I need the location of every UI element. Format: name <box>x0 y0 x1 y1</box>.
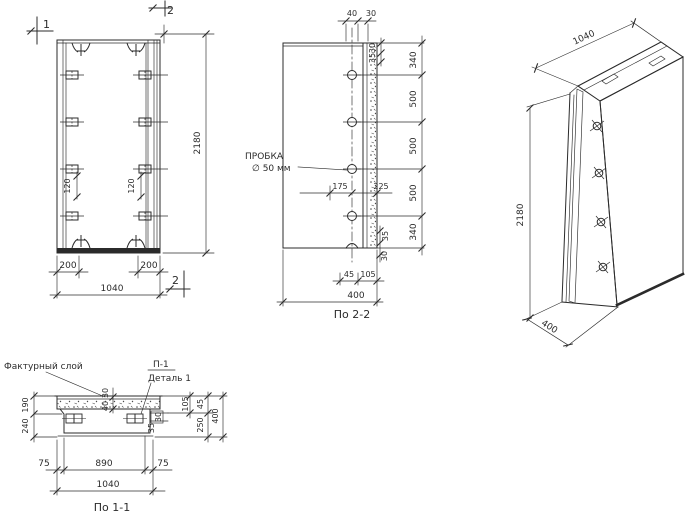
dim-label: 45 <box>196 399 205 409</box>
right-dimensions: 105 45 250 400 <box>155 392 227 442</box>
section-2-2-caption: По 2-2 <box>334 308 370 321</box>
right-top-detail-dimensions: 30 35 <box>368 38 385 66</box>
plug-callout-line2: ∅ 50 мм <box>252 164 291 174</box>
bracket-icon <box>60 212 84 220</box>
lifting-loop-icon <box>72 235 90 248</box>
detail-dimensions: 30 35 <box>147 412 163 433</box>
section-marker-label: 2 <box>167 4 174 17</box>
dim-label: 2180 <box>193 131 203 154</box>
plug-icon <box>594 216 608 228</box>
iso-height-dimension: 2180 <box>516 94 570 322</box>
bracket-icon <box>133 165 168 173</box>
section-1-1-view: Фактурный слой П-1 Деталь 1 30 40 190 24… <box>4 360 227 514</box>
section-marker-2-bottom: 2 <box>166 271 190 297</box>
right-bottom-detail-dimensions: 35 30 <box>377 226 391 262</box>
dim-label: 500 <box>409 90 419 107</box>
dim-label: 1040 <box>97 480 120 490</box>
bracket-offset-dimension-right: 120 <box>127 172 145 201</box>
section-marker-2-top: 2 <box>149 1 174 43</box>
bracket-icon <box>60 71 84 79</box>
bracket-icon <box>60 165 84 173</box>
height-segment-dimensions: 340 500 500 500 340 <box>409 36 426 255</box>
dim-label: 35 <box>147 423 156 433</box>
dim-label: 890 <box>95 459 112 469</box>
dim-label: 200 <box>140 261 157 271</box>
dim-label: 200 <box>59 261 76 271</box>
dim-label: 30 <box>101 388 110 398</box>
section-1-1-caption: По 1-1 <box>94 501 130 514</box>
plug-icon <box>343 212 361 221</box>
lifting-loops <box>72 43 145 248</box>
dim-label: 120 <box>127 178 136 193</box>
dim-label: 500 <box>409 137 419 154</box>
section-2-2-outline <box>283 28 424 262</box>
section-marker-label: 1 <box>43 18 50 31</box>
iso-plugs <box>590 120 610 273</box>
bracket-icon <box>133 118 168 126</box>
dim-label: 225 <box>373 182 388 191</box>
section-marker-1: 1 <box>27 17 53 44</box>
dim-label: 75 <box>157 459 168 469</box>
iso-view: 1040 2180 400 <box>516 18 683 349</box>
facing-layer-label: Фактурный слой <box>4 362 83 372</box>
dim-label: 120 <box>63 178 72 193</box>
section-2-2-view: 40 30 30 35 340 500 500 500 340 ПРОБКА ∅… <box>245 9 426 321</box>
dim-label: 75 <box>38 459 49 469</box>
embedded-brackets <box>62 414 147 423</box>
front-view: 120 120 2180 200 200 <box>27 1 214 299</box>
section-marker-label: 2 <box>172 274 179 287</box>
dim-label: 30 <box>380 251 389 261</box>
dim-label: 1040 <box>572 29 597 48</box>
dim-label: 240 <box>21 418 30 433</box>
dim-label: 500 <box>409 184 419 201</box>
plug-icon <box>592 167 606 179</box>
dim-label: 40 <box>347 9 357 18</box>
bracket-icon <box>123 414 147 423</box>
dim-label: 340 <box>409 51 419 68</box>
dim-label: 175 <box>332 182 347 191</box>
bracket-offset-dimension-left: 120 <box>63 172 81 201</box>
plug-icon <box>343 165 361 174</box>
dim-label: 2180 <box>516 203 526 226</box>
bracket-icon <box>133 71 168 79</box>
bottom-dimensions: 75 890 75 1040 <box>38 436 172 495</box>
dim-label: 30 <box>366 9 376 18</box>
detail-label: Деталь 1 <box>148 374 191 384</box>
plug-icon <box>343 71 361 80</box>
bracket-icon <box>62 414 86 423</box>
dim-label: 30 <box>368 43 377 53</box>
dim-label: 30 <box>154 412 163 422</box>
plug-icon <box>596 261 610 273</box>
iso-depth-dimension: 400 <box>522 307 618 350</box>
height-dimension: 2180 <box>155 31 214 257</box>
dim-label: 400 <box>211 408 220 423</box>
dim-label: 250 <box>196 417 205 432</box>
mid-dimensions: 175 225 <box>300 182 392 200</box>
lifting-loop-icon <box>127 43 145 56</box>
bracket-icon <box>60 118 84 126</box>
dim-label: 400 <box>539 319 559 337</box>
bracket-icon <box>133 212 168 220</box>
dim-label: 340 <box>409 223 419 240</box>
bottom-dimensions: 45 105 <box>333 270 384 285</box>
width-dimension: 1040 <box>50 284 167 299</box>
lifting-loop-icon <box>72 43 90 56</box>
panel-drawing: 120 120 2180 200 200 <box>0 0 698 523</box>
dim-label: 105 <box>181 396 190 411</box>
dim-label: 40 <box>101 401 110 411</box>
dim-label: 35 <box>381 231 390 241</box>
dim-label: 1040 <box>101 284 124 294</box>
dim-label: 45 <box>344 270 354 279</box>
iso-panel <box>562 42 683 307</box>
dim-label: 105 <box>360 270 375 279</box>
plug-callout-line1: ПРОБКА <box>245 152 284 162</box>
lifting-loop-icon <box>127 235 145 248</box>
dim-label: 400 <box>347 291 364 301</box>
front-view-outline <box>57 40 160 253</box>
plug-callout: ПРОБКА ∅ 50 мм <box>245 152 347 174</box>
dim-label: 190 <box>21 397 30 412</box>
anchor-label: П-1 <box>153 360 169 370</box>
facing-layer-callout: Фактурный слой <box>4 362 105 397</box>
left-dimensions: 190 240 <box>21 392 62 442</box>
dim-label: 35 <box>368 53 377 63</box>
top-dimensions: 40 30 <box>338 9 376 41</box>
plug-icon <box>343 118 361 127</box>
